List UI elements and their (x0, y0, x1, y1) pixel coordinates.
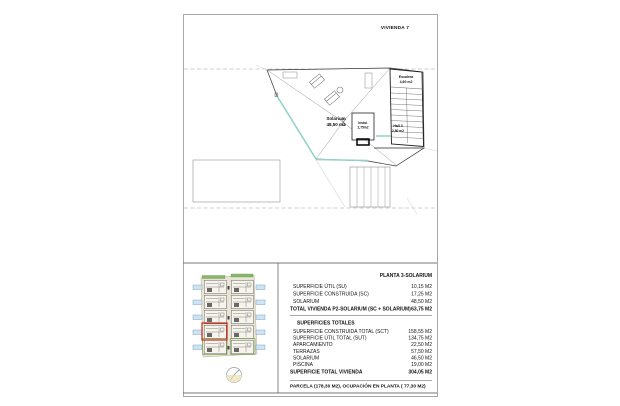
row-label: PISCINA (290, 361, 313, 368)
solarium-area: 48,50 m2 (326, 122, 346, 127)
row-value: 46,50 M2 (411, 355, 432, 362)
site-plan-thumbnail (193, 274, 265, 357)
row-value: 17,25 M2 (411, 291, 432, 299)
row-spacer (367, 335, 409, 342)
table-row: SUPERFICIE CONSTRUIDA TOTAL (SCT) 158,55… (290, 329, 432, 336)
hall-area: 2,80 m2 (392, 129, 404, 133)
page-title: VIVIENDA 7 (350, 25, 440, 31)
row-spacer (369, 291, 411, 299)
table-divider (290, 380, 432, 381)
solarium-label: Solarium (326, 116, 345, 121)
planta-table: SUPERFICIE ÚTIL (SU) 10,15 M2 SUPERFICIE… (290, 283, 432, 313)
row-label: SUPERFICIE CONSTRUIDA TOTAL (SCT) (290, 329, 389, 336)
parcela-summary: PARCELA (178,30 M2), OCUPACIÓN EN PLANTA… (290, 384, 432, 390)
row-label: TOTAL VIVIENDA P2-SOLARIUM (SC + SOLARIU… (290, 306, 411, 314)
row-spacer (347, 283, 411, 291)
row-value: 158,55 M2 (408, 329, 432, 336)
planta-table-header: PLANTA 3-SOLARIUM (290, 273, 432, 279)
surface-tables: PLANTA 3-SOLARIUM SUPERFICIE ÚTIL (SU) 1… (278, 263, 437, 393)
row-value: 10,15 M2 (411, 283, 432, 291)
row-value: 134,75 M2 (408, 335, 432, 342)
row-label: SUPERFICIE CONSTRUIDA (SC) (290, 291, 369, 299)
row-label: SUPERFICIE ÚTIL TOTAL (SUT) (290, 335, 367, 342)
row-value: 19,00 M2 (411, 361, 432, 368)
row-value: 304,05 M2 (408, 369, 432, 376)
staircase-area: 4,60 m2 (400, 80, 413, 84)
table-row: TERRAZAS 57,50 M2 (290, 348, 432, 355)
table-divider (290, 316, 432, 317)
row-spacer (333, 342, 412, 349)
table-row: SUPERFICIE ÚTIL (SU) 10,15 M2 (290, 283, 432, 291)
installations-room: Instal. 2,75m2 (352, 113, 374, 145)
table-row: SUPERFICIE CONSTRUIDA (SC) 17,25 M2 (290, 291, 432, 299)
installations-area: 2,75m2 (357, 126, 368, 130)
row-label: SOLARIUM (290, 355, 319, 362)
staircase: Escalera 4,60 m2 (390, 69, 424, 147)
totales-table: SUPERFICIE CONSTRUIDA TOTAL (SCT) 158,55… (290, 329, 432, 376)
table-row: APARCAMIENTO 22,50 M2 (290, 342, 432, 349)
compass-icon (227, 368, 242, 383)
table-row: PISCINA 19,00 M2 (290, 361, 432, 368)
table-total-row: SUPERFICIE TOTAL VIVIENDA 304,05 M2 (290, 369, 432, 376)
lower-floor-outline (193, 160, 390, 207)
row-label: SUPERFICIE TOTAL VIVIENDA (290, 369, 363, 376)
row-value: 22,50 M2 (411, 342, 432, 349)
row-spacer (319, 298, 411, 306)
drawing-sheet-stage: Escalera 4,60 m2 Instal. 2,75m2 Hall 3 2… (0, 0, 620, 406)
row-spacer (320, 348, 411, 355)
installations-label: Instal. (358, 121, 367, 125)
row-label: APARCAMIENTO (290, 342, 333, 349)
hall-label: Hall 3 (393, 124, 402, 128)
table-row: SOLARIUM 48,50 M2 (290, 298, 432, 306)
row-value: 57,50 M2 (411, 348, 432, 355)
totales-table-header: SUPERFICIES TOTALES (290, 321, 432, 327)
row-spacer (389, 329, 409, 336)
row-value: 48,50 M2 (411, 298, 432, 306)
row-value: 63,75 M2 (411, 306, 432, 314)
table-total-row: TOTAL VIVIENDA P2-SOLARIUM (SC + SOLARIU… (290, 306, 432, 314)
row-spacer (319, 355, 411, 362)
staircase-label: Escalera (399, 75, 413, 79)
row-label: SUPERFICIE ÚTIL (SU) (290, 283, 347, 291)
row-label: SOLARIUM (290, 298, 319, 306)
row-spacer (363, 369, 409, 376)
row-label: TERRAZAS (290, 348, 320, 355)
table-row: SOLARIUM 46,50 M2 (290, 355, 432, 362)
row-spacer (313, 361, 411, 368)
table-row: SUPERFICIE ÚTIL TOTAL (SUT) 134,75 M2 (290, 335, 432, 342)
